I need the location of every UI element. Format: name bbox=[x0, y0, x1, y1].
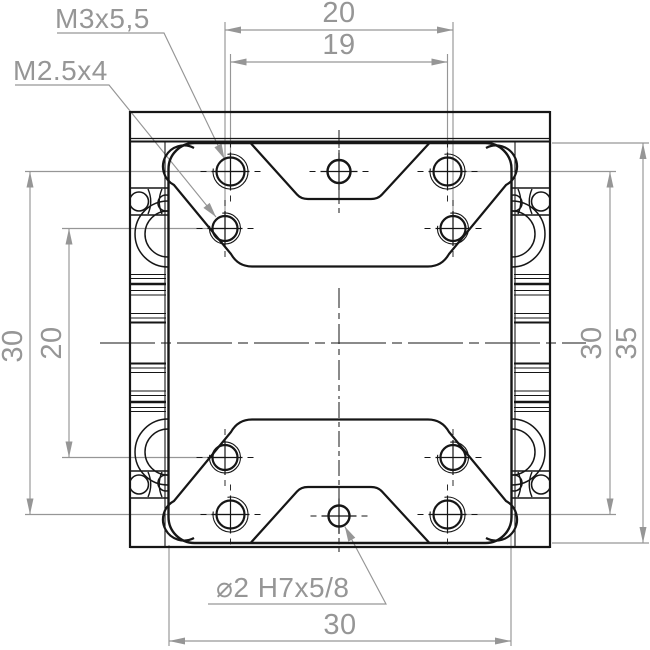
dim-bottom: 30 bbox=[323, 609, 356, 641]
leader-m3 bbox=[57, 33, 225, 159]
callout-dowel: ⌀2 H7x5/8 bbox=[216, 572, 349, 603]
thread-hole-m3-top-right-crosshair bbox=[429, 153, 467, 191]
leader-m25 bbox=[15, 85, 216, 217]
dimension-arrows bbox=[27, 27, 647, 645]
thread-hole-m25-bottom-left-crosshair bbox=[208, 440, 243, 475]
bottom-end-plate bbox=[163, 420, 517, 541]
thread-hole-m3-bottom-right-crosshair bbox=[429, 496, 467, 534]
dowel-hole-bottom-crosshair bbox=[322, 499, 357, 534]
dim-left-inner: 20 bbox=[36, 326, 68, 359]
technical-drawing: M3x5,5 M2.5x4 ⌀2 H7x5/8 20 19 30 20 30 3… bbox=[0, 0, 650, 650]
dim-left-outer: 30 bbox=[0, 329, 29, 362]
dim-top-inner: 19 bbox=[322, 29, 355, 61]
thread-hole-m3-top-left-crosshair bbox=[212, 153, 250, 191]
dowel-hole-top-crosshair bbox=[321, 153, 358, 190]
dimension-layer: M3x5,5 M2.5x4 ⌀2 H7x5/8 20 19 30 20 30 3… bbox=[0, 0, 649, 646]
thread-hole-m25-bottom-right-crosshair bbox=[436, 440, 471, 475]
drawing-canvas: M3x5,5 M2.5x4 ⌀2 H7x5/8 20 19 30 20 30 3… bbox=[0, 0, 650, 650]
thread-hole-m25-top-left-crosshair bbox=[208, 211, 243, 246]
top-end-plate bbox=[163, 145, 517, 266]
part-body bbox=[100, 111, 586, 552]
bottom-notch bbox=[251, 487, 429, 543]
callout-thread-top: M3x5,5 bbox=[55, 3, 150, 34]
extension-lines bbox=[25, 22, 649, 646]
callout-thread-front: M2.5x4 bbox=[13, 55, 108, 86]
dim-right-outer: 35 bbox=[611, 326, 643, 359]
dim-top-outer: 20 bbox=[322, 0, 355, 29]
rail-side-edges bbox=[130, 111, 550, 548]
thread-hole-m3-bottom-left-crosshair bbox=[212, 496, 250, 534]
thread-hole-m25-top-right-crosshair bbox=[436, 211, 471, 246]
